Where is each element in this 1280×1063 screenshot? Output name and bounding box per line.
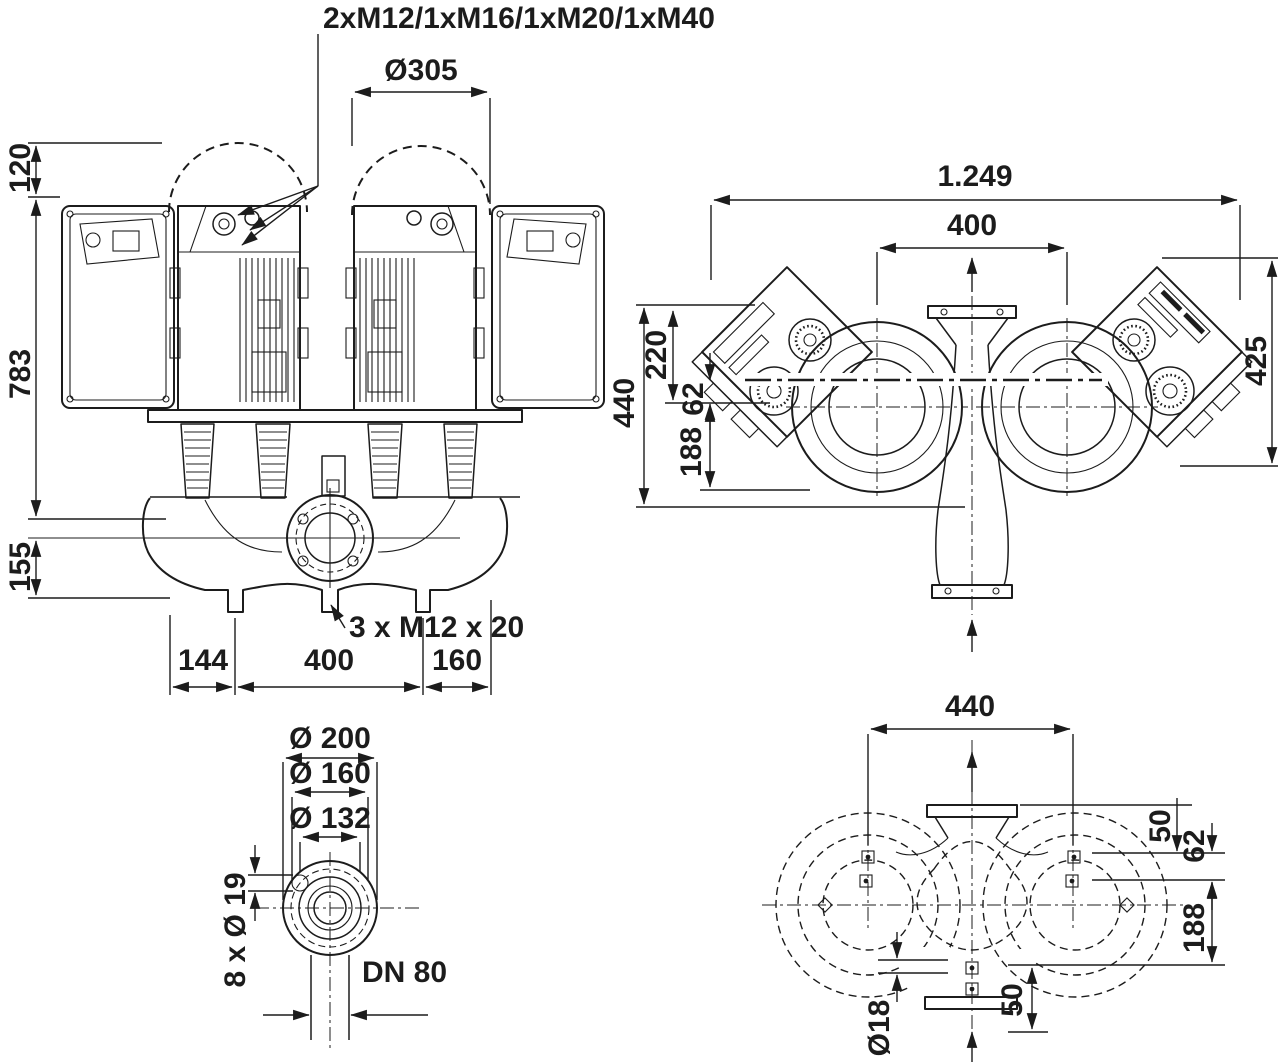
dim-rear-depth: 188	[675, 427, 708, 477]
base-plan-dimensions: 440 50 62 188 50	[863, 690, 1225, 1062]
module-display-left	[113, 231, 139, 251]
dim-50-lower: 50	[996, 983, 1029, 1016]
seal-housing-fins	[181, 424, 477, 498]
left-electronic-module	[62, 206, 174, 408]
dim-bolt-holes: 8 x Ø 19	[219, 872, 252, 987]
dim-port-spacing: 400	[304, 644, 354, 677]
motor-removal-clearance-arc-left	[169, 143, 307, 212]
module-button-right	[566, 233, 580, 247]
dim-overall-depth: 440	[608, 378, 641, 428]
dim-base-height: 155	[4, 542, 37, 592]
pump-housing	[143, 410, 522, 612]
dim-raised-face: Ø 132	[289, 802, 371, 835]
volute-outline	[143, 498, 507, 612]
top-view-right-module	[1072, 267, 1261, 456]
whiteout-patch-1	[902, 947, 950, 987]
dim-axis-offset: 62	[677, 382, 710, 415]
cable-glands-label: 2xM12/1xM16/1xM20/1xM40	[323, 2, 715, 35]
dim-pump-height: 783	[4, 349, 37, 399]
dim-overall-width: 1.249	[937, 160, 1012, 193]
dim-50-upper: 50	[1144, 809, 1177, 842]
dim-62: 62	[1178, 829, 1211, 862]
technical-drawing-canvas: 2xM12/1xM16/1xM20/1xM40 Ø305 120 783 155	[0, 0, 1280, 1063]
dim-depth-right: 425	[1240, 336, 1273, 386]
left-motor	[170, 206, 308, 410]
front-view: 2xM12/1xM16/1xM20/1xM40 Ø305 120 783 155	[4, 2, 715, 695]
motor-removal-clearance-arc-right	[352, 146, 490, 215]
dim-left-offset: 144	[178, 644, 228, 677]
dim-clearance-height: 120	[4, 143, 37, 193]
dim-motor-spacing: 400	[947, 209, 997, 242]
flange-circles	[255, 852, 420, 1052]
flange-detail-view: Ø 200 Ø 160 Ø 132 8 x Ø 19 DN 80	[219, 722, 447, 1052]
cable-gland-1	[213, 213, 235, 235]
dim-bolt-circle: Ø 160	[289, 757, 371, 790]
dim-motor-clearance: Ø305	[384, 54, 457, 87]
base-plan-view: 440 50 62 188 50	[762, 690, 1225, 1062]
top-view-dimensions: 1.249 400 425 440 220 62	[608, 160, 1278, 507]
right-motor	[346, 206, 484, 410]
module-display-right	[527, 231, 553, 251]
top-view-pipe	[928, 258, 1016, 652]
whiteout-patch-2	[1020, 949, 1042, 962]
top-view-left-module	[683, 267, 872, 456]
pump-dimension-drawing: 2xM12/1xM16/1xM20/1xM40 Ø305 120 783 155	[0, 0, 1280, 1063]
dim-188: 188	[1178, 903, 1211, 953]
right-electronic-module	[492, 206, 604, 408]
module-button-left	[86, 233, 100, 247]
tapping-label: 3 x M12 x 20	[349, 611, 524, 644]
dim-flange-outer: Ø 200	[289, 722, 371, 755]
dim-front-depth: 220	[640, 330, 673, 380]
dim-right-offset: 160	[432, 644, 482, 677]
dim-nominal-bore: DN 80	[362, 956, 447, 989]
flange-dimensions: Ø 200 Ø 160 Ø 132 8 x Ø 19 DN 80	[219, 722, 447, 1015]
dim-bolt-span: 440	[945, 690, 995, 723]
cable-gland-2	[245, 211, 259, 225]
dim-anchor-hole: Ø18	[863, 1000, 896, 1057]
top-view: 1.249 400 425 440 220 62	[608, 160, 1278, 652]
